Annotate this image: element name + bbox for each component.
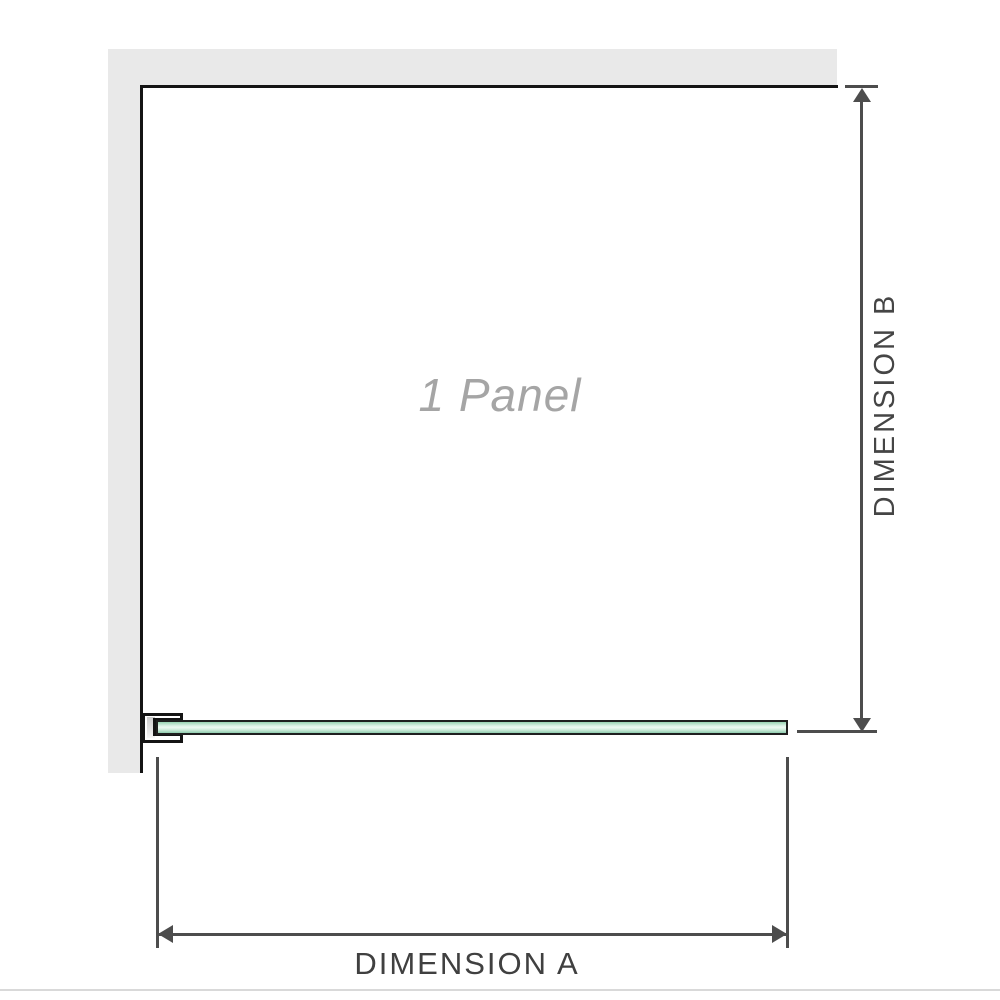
dimension-a-extension-left — [156, 757, 159, 948]
dimension-b-line — [860, 98, 863, 719]
dimension-a-line — [159, 933, 787, 936]
arrowhead-up-icon — [853, 88, 871, 102]
glass-panel-bar — [156, 720, 788, 735]
dimension-diagram: 1 Panel DIMENSION B DIMENSION A — [0, 0, 1000, 1000]
wall-top-strip — [108, 49, 837, 85]
panel-count-label: 1 Panel — [340, 368, 660, 422]
arrowhead-right-icon — [772, 925, 787, 943]
dimension-a-extension-right — [786, 757, 789, 948]
dimension-a-label: DIMENSION A — [317, 946, 617, 982]
panel-outline-left — [140, 85, 143, 773]
dimension-b-label: DIMENSION B — [869, 255, 899, 555]
wall-left-strip — [108, 49, 140, 773]
panel-outline-top — [140, 85, 838, 88]
arrowhead-left-icon — [158, 925, 173, 943]
bottom-separator-line — [0, 989, 1000, 991]
arrowhead-down-icon — [853, 718, 871, 732]
